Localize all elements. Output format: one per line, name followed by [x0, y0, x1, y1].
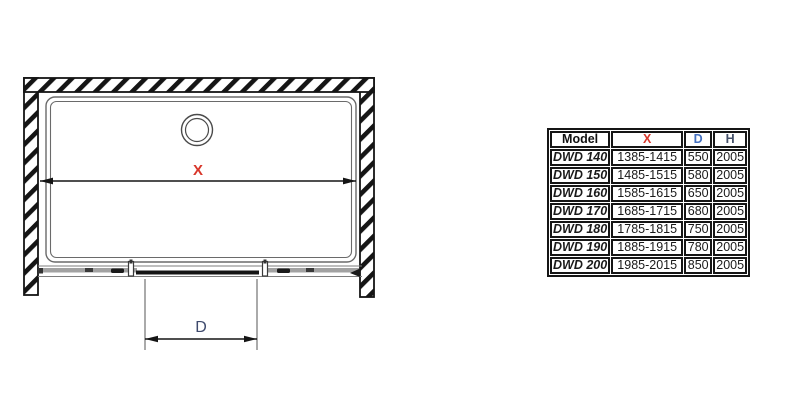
header-model: Model — [550, 131, 610, 148]
page: X D Model X — [0, 0, 800, 415]
wall-top — [24, 78, 374, 92]
spec-row-dwd170: DWD 170 1685-1715 680 2005 — [550, 203, 747, 220]
model-cell: DWD 150 — [550, 167, 610, 184]
wall-profile-left — [38, 268, 43, 274]
h-cell: 2005 — [713, 203, 747, 220]
drain-outer-circle — [182, 115, 213, 146]
spec-row-dwd200: DWD 200 1985-2015 850 2005 — [550, 257, 747, 274]
door-bracket-right — [263, 262, 268, 277]
door-bracket-right-cap — [264, 260, 267, 264]
spec-row-dwd140: DWD 140 1385-1415 550 2005 — [550, 149, 747, 166]
x-range-cell: 1785-1815 — [611, 221, 683, 238]
spec-row-dwd160: DWD 160 1585-1615 650 2005 — [550, 185, 747, 202]
header-h: H — [713, 131, 747, 148]
door-bracket-left — [129, 262, 134, 277]
d-cell: 780 — [684, 239, 712, 256]
d-cell: 580 — [684, 167, 712, 184]
wall-left — [24, 78, 38, 295]
wall-right — [360, 78, 374, 297]
spec-row-dwd180: DWD 180 1785-1815 750 2005 — [550, 221, 747, 238]
spec-row-dwd150: DWD 150 1485-1515 580 2005 — [550, 167, 747, 184]
d-cell: 850 — [684, 257, 712, 274]
h-cell: 2005 — [713, 185, 747, 202]
d-cell: 650 — [684, 185, 712, 202]
model-cell: DWD 180 — [550, 221, 610, 238]
x-range-cell: 1585-1615 — [611, 185, 683, 202]
x-range-cell: 1985-2015 — [611, 257, 683, 274]
x-range-cell: 1385-1415 — [611, 149, 683, 166]
h-cell: 2005 — [713, 149, 747, 166]
h-cell: 2005 — [713, 239, 747, 256]
panel-clamp-left — [85, 268, 93, 272]
roller-right — [277, 269, 290, 274]
spec-row-dwd190: DWD 190 1885-1915 780 2005 — [550, 239, 747, 256]
model-cell: DWD 190 — [550, 239, 610, 256]
d-dimension-arrow-left — [145, 336, 158, 342]
x-range-cell: 1485-1515 — [611, 167, 683, 184]
model-cell: DWD 200 — [550, 257, 610, 274]
spec-table-container: Model X D H DWD 140 1385-1415 550 2005 D… — [547, 128, 750, 277]
d-dimension-arrow-right — [244, 336, 257, 342]
spec-table: Model X D H DWD 140 1385-1415 550 2005 D… — [547, 128, 750, 277]
header-x: X — [611, 131, 683, 148]
h-cell: 2005 — [713, 167, 747, 184]
x-range-cell: 1885-1915 — [611, 239, 683, 256]
model-cell: DWD 170 — [550, 203, 610, 220]
model-cell: DWD 160 — [550, 185, 610, 202]
sliding-door-panel — [136, 271, 259, 275]
roller-left — [111, 269, 124, 274]
x-range-cell: 1685-1715 — [611, 203, 683, 220]
door-bracket-left-cap — [130, 260, 133, 264]
shower-door-diagram: X D — [0, 0, 430, 415]
spec-table-header-row: Model X D H — [550, 131, 747, 148]
panel-clamp-right — [306, 268, 314, 272]
x-dimension-label: X — [193, 162, 203, 179]
h-cell: 2005 — [713, 221, 747, 238]
d-cell: 550 — [684, 149, 712, 166]
h-cell: 2005 — [713, 257, 747, 274]
d-dimension-label: D — [195, 319, 207, 336]
header-d: D — [684, 131, 712, 148]
d-cell: 750 — [684, 221, 712, 238]
d-cell: 680 — [684, 203, 712, 220]
model-cell: DWD 140 — [550, 149, 610, 166]
